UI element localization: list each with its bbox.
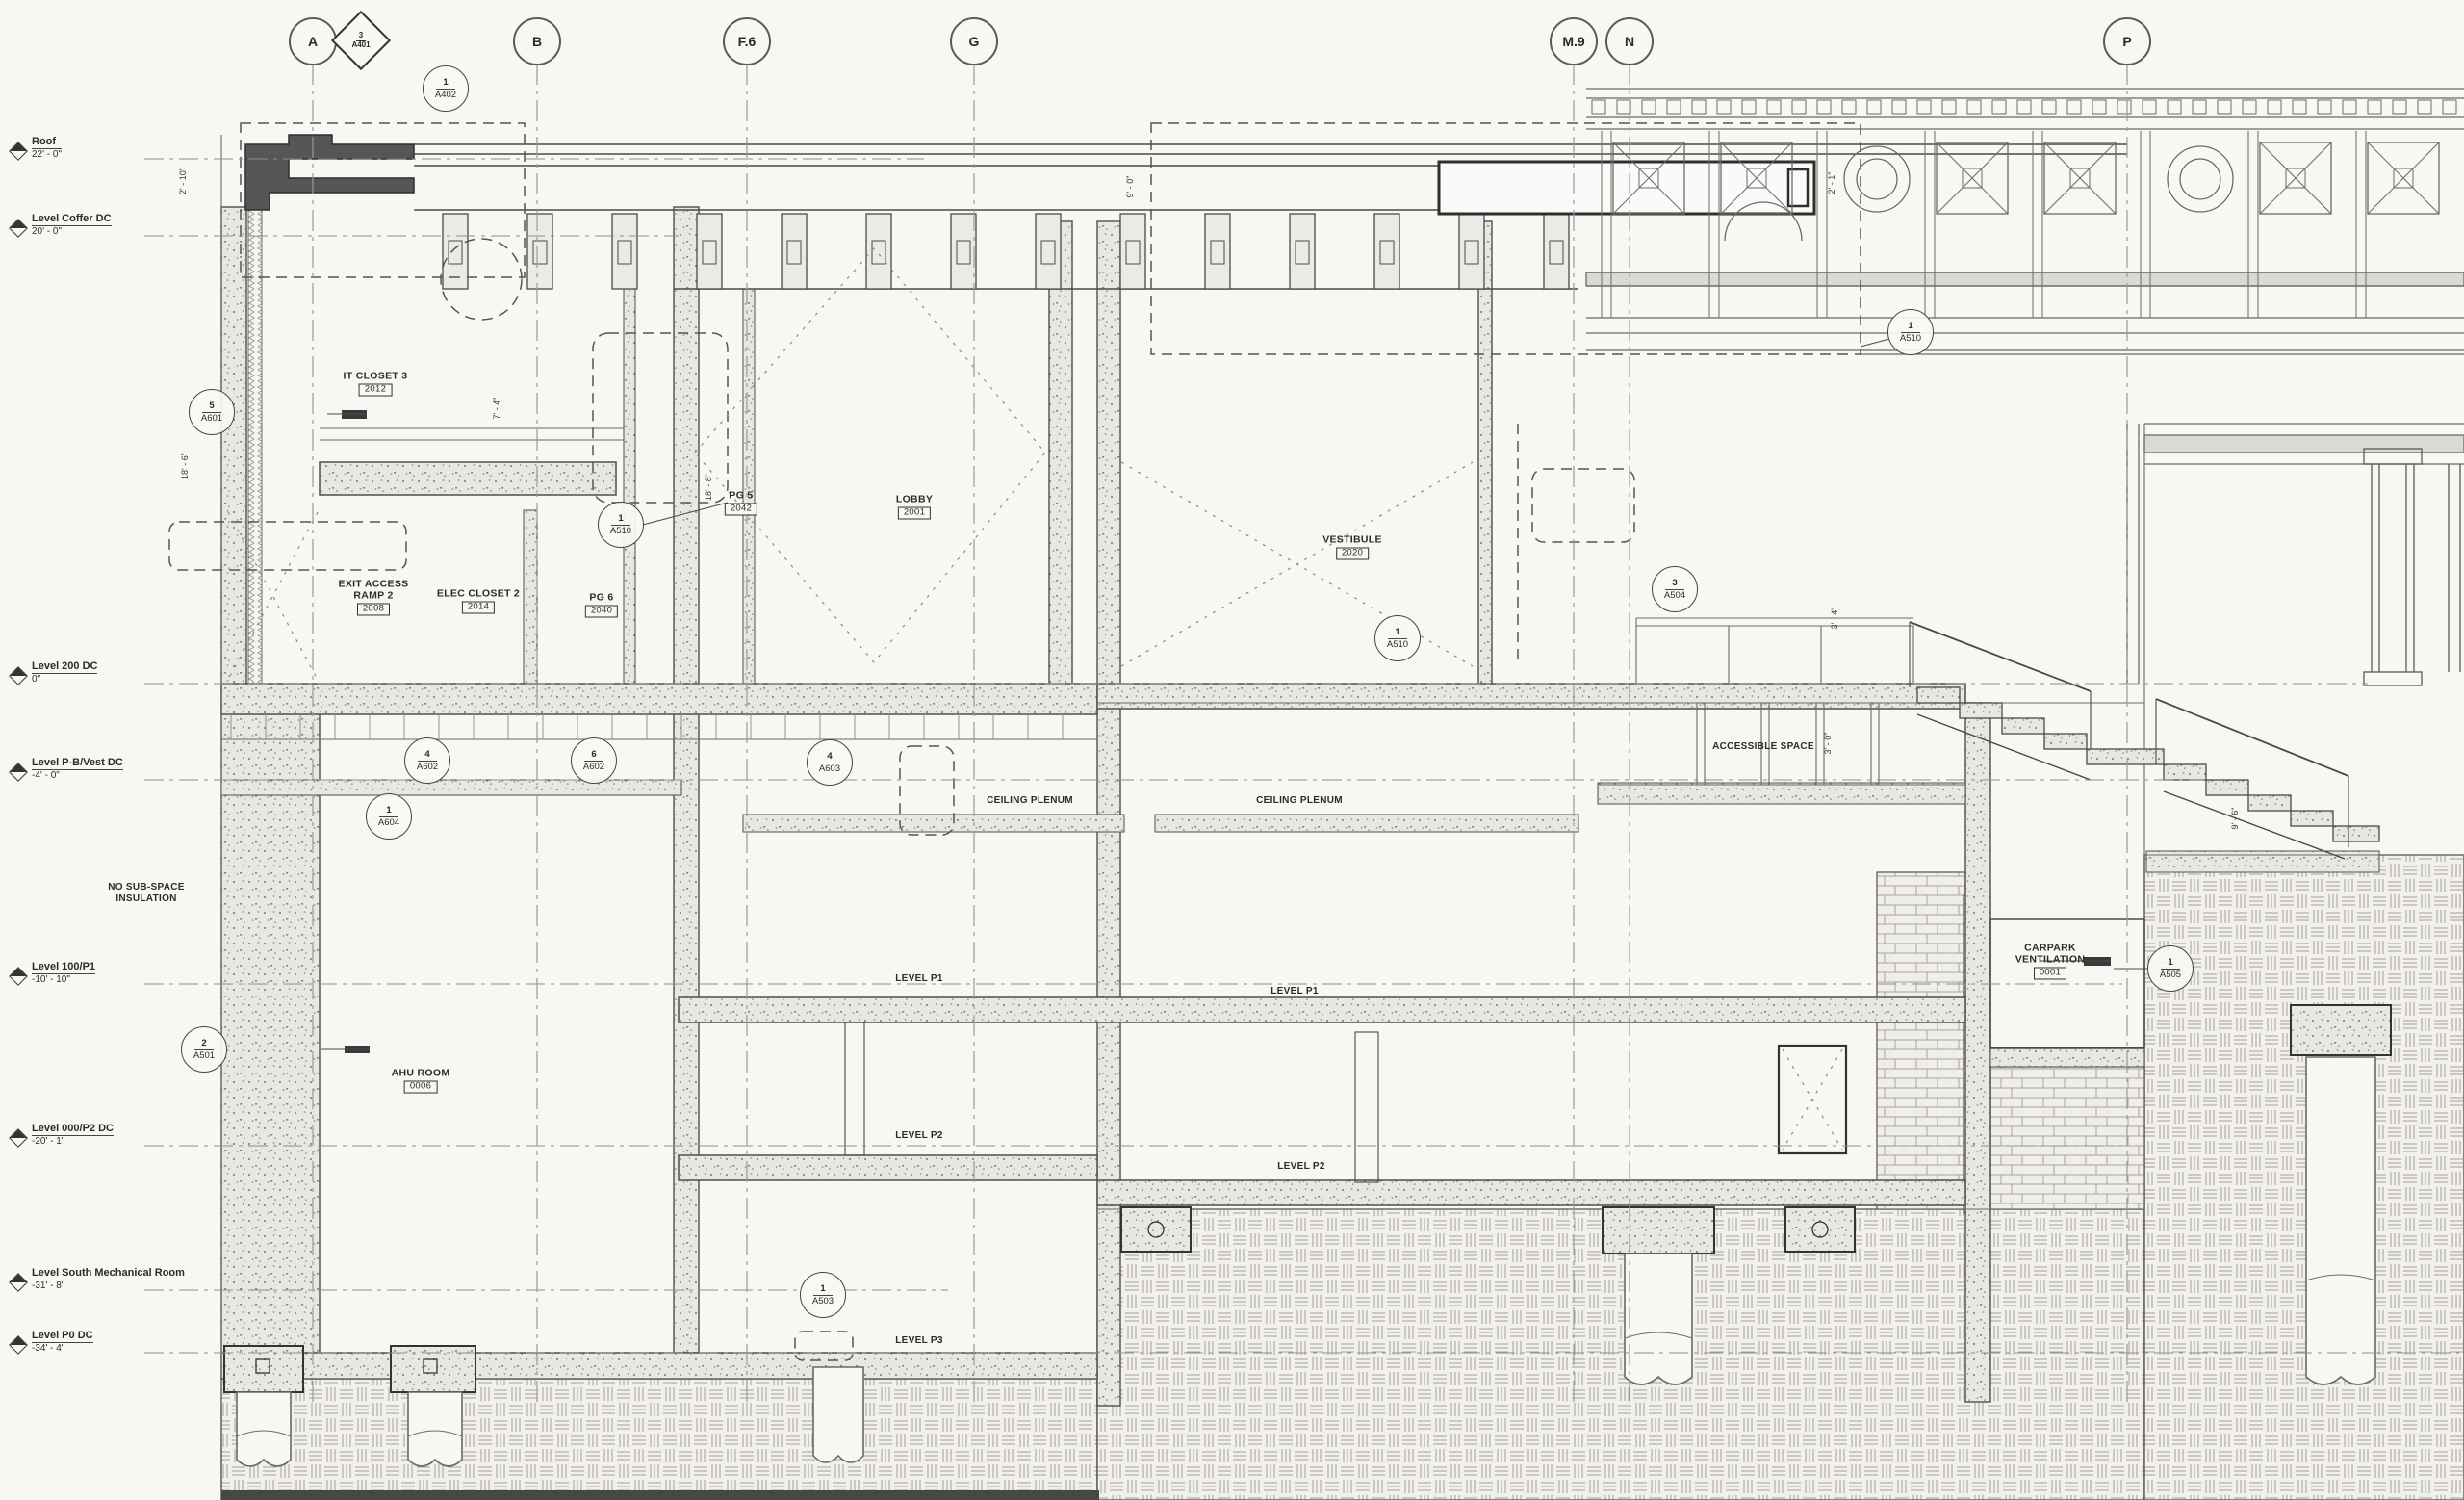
roof-structure bbox=[245, 135, 2127, 289]
section-linework bbox=[0, 0, 2464, 1500]
classical-columns bbox=[2364, 449, 2460, 685]
parapet-dark-mass bbox=[245, 135, 414, 210]
clerestory-mullions bbox=[443, 214, 1569, 289]
masonry-walls bbox=[1877, 872, 2144, 1213]
section-drawing-sheet: ABF.6GM.9NP3A401Roof22' - 0"Level Coffer… bbox=[0, 0, 2464, 1500]
